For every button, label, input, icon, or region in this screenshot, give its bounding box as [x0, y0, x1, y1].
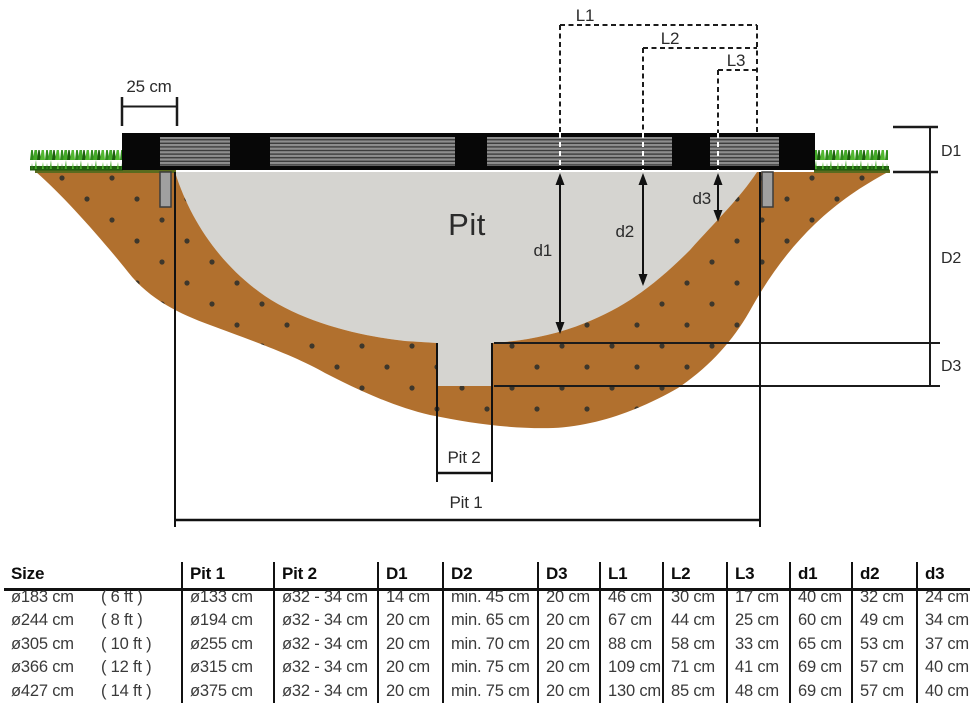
- table-row-cell: 20 cm: [537, 609, 599, 633]
- frame-pad-1: [160, 137, 230, 166]
- table-row-cell: ø32 - 34 cm: [273, 586, 377, 610]
- table-row-cell: ø32 - 34 cm: [273, 609, 377, 633]
- table-row-cell: 17 cm: [726, 586, 789, 610]
- pit2-label: Pit 2: [447, 448, 480, 467]
- table-row-cell: ø133 cm: [181, 586, 273, 610]
- pit-label: Pit: [448, 207, 486, 242]
- table-row-cell: 20 cm: [537, 633, 599, 657]
- table-row-cell: 14 cm: [377, 586, 442, 610]
- table-row-cell: 24 cm: [916, 586, 970, 610]
- table-row-cell: 20 cm: [377, 609, 442, 633]
- table-row-cell: min. 70 cm: [442, 633, 537, 657]
- table-row-cell: 20 cm: [377, 633, 442, 657]
- table-row-cell: min. 75 cm: [442, 680, 537, 704]
- table-row-cell: 32 cm: [851, 586, 916, 610]
- offset-dimension: [122, 97, 177, 126]
- table-row-cell: ø244 cm( 8 ft ): [4, 609, 181, 633]
- table-row-cell: 20 cm: [377, 680, 442, 704]
- pit-cross-section-diagram: L1 L2 L3 25 cm Pit d1 d2 d3 D1 D2 D3: [0, 0, 974, 560]
- table-row-cell: ø183 cm( 6 ft ): [4, 586, 181, 610]
- table-row-cell: 53 cm: [851, 633, 916, 657]
- size-ft-value: ( 10 ft ): [101, 635, 151, 653]
- size-value: ø183 cm: [11, 586, 101, 610]
- table-row-cell: 46 cm: [599, 586, 662, 610]
- table-row-cell: 71 cm: [662, 656, 726, 680]
- table-row-cell: ø255 cm: [181, 633, 273, 657]
- table-row-cell: 20 cm: [537, 680, 599, 704]
- table-row-cell: min. 75 cm: [442, 656, 537, 680]
- frame-leg-left: [160, 172, 171, 207]
- table-row-cell: ø427 cm( 14 ft ): [4, 680, 181, 704]
- table-row-cell: 20 cm: [537, 656, 599, 680]
- table-row-cell: 25 cm: [726, 609, 789, 633]
- d2-label: d2: [615, 222, 634, 241]
- table-row-cell: 34 cm: [916, 609, 970, 633]
- size-value: ø244 cm: [11, 609, 101, 633]
- table-row-cell: 57 cm: [851, 680, 916, 704]
- trampoline-pit-installation-page: L1 L2 L3 25 cm Pit d1 d2 d3 D1 D2 D3: [0, 0, 974, 724]
- size-ft-value: ( 6 ft ): [101, 588, 143, 606]
- table-row-cell: ø375 cm: [181, 680, 273, 704]
- table-row-cell: 48 cm: [726, 680, 789, 704]
- table-row-cell: 65 cm: [789, 633, 851, 657]
- table-row-cell: 69 cm: [789, 656, 851, 680]
- table-row-cell: ø32 - 34 cm: [273, 633, 377, 657]
- l2-label: L2: [661, 29, 680, 48]
- table-row-cell: 88 cm: [599, 633, 662, 657]
- table-row-cell: ø305 cm( 10 ft ): [4, 633, 181, 657]
- table-row-cell: 33 cm: [726, 633, 789, 657]
- trampoline-frame: [122, 133, 815, 170]
- pit1-label: Pit 1: [449, 493, 482, 512]
- D2-label: D2: [941, 250, 961, 267]
- size-value: ø305 cm: [11, 633, 101, 657]
- table-row-cell: 40 cm: [789, 586, 851, 610]
- frame-pad-2: [270, 137, 455, 166]
- table-row-cell: ø32 - 34 cm: [273, 680, 377, 704]
- table-row-cell: 109 cm: [599, 656, 662, 680]
- d1-label: d1: [533, 241, 552, 260]
- d3-label: d3: [692, 189, 711, 208]
- table-row-cell: 67 cm: [599, 609, 662, 633]
- table-row-cell: 40 cm: [916, 680, 970, 704]
- size-value: ø427 cm: [11, 680, 101, 704]
- table-row-cell: 60 cm: [789, 609, 851, 633]
- table-row-cell: 57 cm: [851, 656, 916, 680]
- table-row-cell: 58 cm: [662, 633, 726, 657]
- frame-pad-4: [710, 137, 779, 166]
- table-row-cell: ø315 cm: [181, 656, 273, 680]
- frame-leg-right: [762, 172, 773, 207]
- l1-label: L1: [576, 6, 595, 25]
- l3-label: L3: [727, 51, 746, 70]
- table-row-cell: 37 cm: [916, 633, 970, 657]
- size-specification-table: Size Pit 1 Pit 2 D1 D2 D3 L1 L2 L3 d1 d2…: [4, 562, 970, 703]
- size-value: ø366 cm: [11, 656, 101, 680]
- table-row-cell: 130 cm: [599, 680, 662, 704]
- table-row-cell: 20 cm: [537, 586, 599, 610]
- table-row-cell: ø366 cm( 12 ft ): [4, 656, 181, 680]
- table-row-cell: min. 65 cm: [442, 609, 537, 633]
- size-ft-value: ( 14 ft ): [101, 682, 151, 700]
- frame-pad-3: [487, 137, 672, 166]
- table-row-cell: 49 cm: [851, 609, 916, 633]
- table-row-cell: 30 cm: [662, 586, 726, 610]
- size-ft-value: ( 12 ft ): [101, 658, 151, 676]
- grass-right: [814, 150, 888, 169]
- table-row-cell: 44 cm: [662, 609, 726, 633]
- table-row-cell: 41 cm: [726, 656, 789, 680]
- D1-label: D1: [941, 143, 961, 160]
- D3-label: D3: [941, 358, 961, 375]
- table-row-cell: ø194 cm: [181, 609, 273, 633]
- table-row-cell: 40 cm: [916, 656, 970, 680]
- size-ft-value: ( 8 ft ): [101, 611, 143, 629]
- offset-label: 25 cm: [126, 77, 171, 96]
- l-dimensions: [560, 25, 757, 133]
- table-row-cell: min. 45 cm: [442, 586, 537, 610]
- grass-left: [30, 150, 122, 169]
- table-row-cell: 85 cm: [662, 680, 726, 704]
- table-row-cell: ø32 - 34 cm: [273, 656, 377, 680]
- table-row-cell: 20 cm: [377, 656, 442, 680]
- table-row-cell: 69 cm: [789, 680, 851, 704]
